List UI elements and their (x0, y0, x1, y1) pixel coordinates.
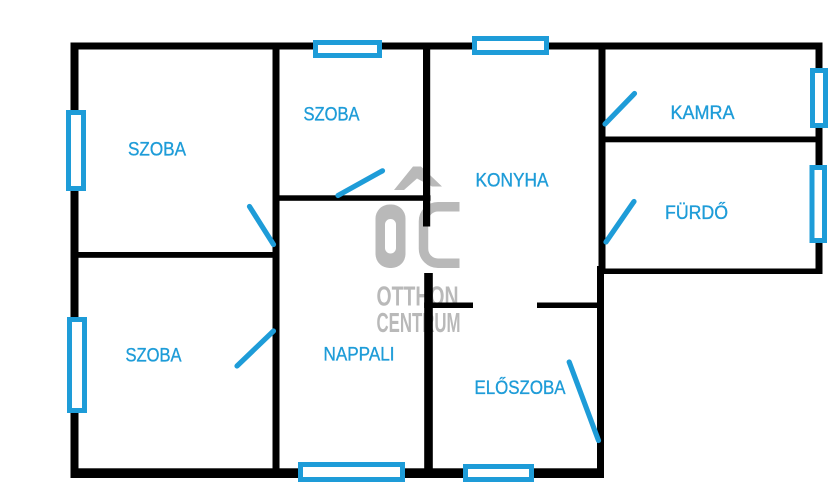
svg-text:KONYHA: KONYHA (476, 171, 549, 192)
svg-text:FÜRDŐ: FÜRDŐ (665, 202, 728, 224)
svg-text:NAPPALI: NAPPALI (324, 345, 395, 366)
svg-text:SZOBA: SZOBA (126, 346, 182, 367)
svg-text:ELŐSZOBA: ELŐSZOBA (475, 377, 566, 399)
svg-text:SZOBA: SZOBA (304, 105, 360, 126)
svg-text:KAMRA: KAMRA (671, 103, 735, 124)
svg-text:SZOBA: SZOBA (128, 140, 186, 161)
svg-text:CENTRUM: CENTRUM (377, 307, 461, 338)
